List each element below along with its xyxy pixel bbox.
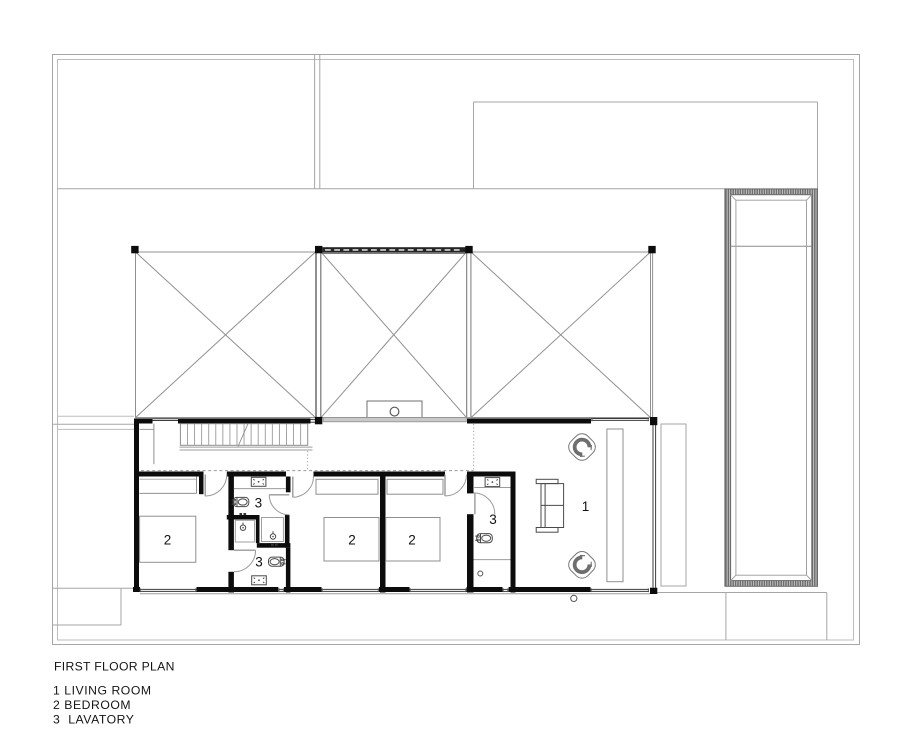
svg-text:3: 3 — [255, 555, 263, 570]
svg-text:3 LAVATORY: 3 LAVATORY — [53, 713, 134, 727]
svg-text:1 LIVING ROOM: 1 LIVING ROOM — [53, 684, 152, 698]
svg-text:2 BEDROOM: 2 BEDROOM — [53, 698, 131, 712]
svg-text:1: 1 — [582, 499, 590, 514]
svg-text:2: 2 — [408, 532, 416, 547]
svg-text:3: 3 — [489, 512, 497, 527]
svg-text:2: 2 — [164, 532, 172, 547]
svg-text:FIRST FLOOR PLAN: FIRST FLOOR PLAN — [54, 660, 175, 674]
svg-text:3: 3 — [255, 495, 263, 510]
svg-text:2: 2 — [348, 532, 356, 547]
